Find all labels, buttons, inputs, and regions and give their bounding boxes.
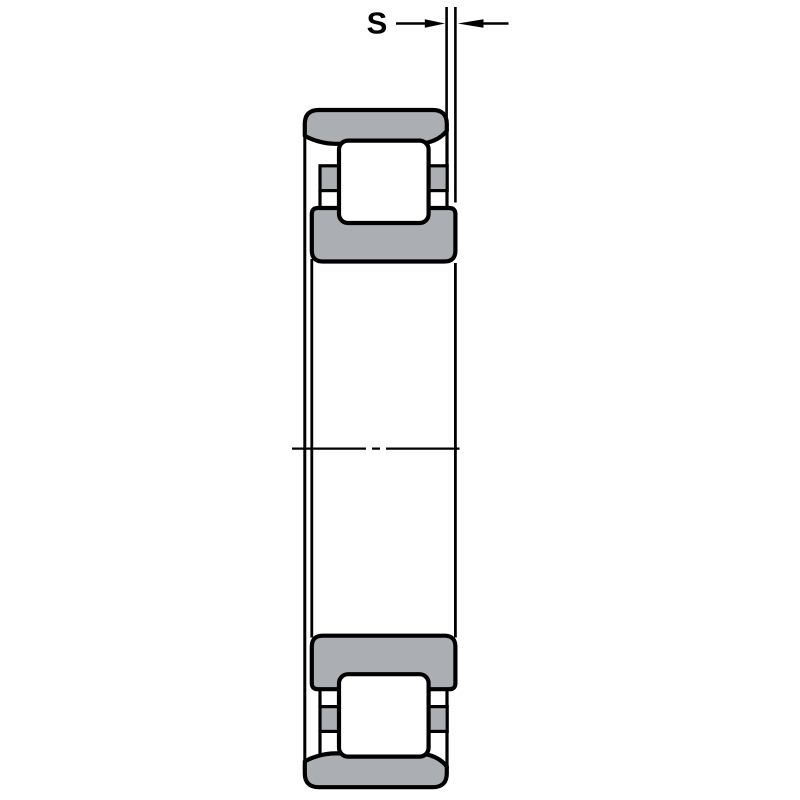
cage-bar-section-top-left bbox=[320, 166, 339, 191]
cylindrical-roller-bottom bbox=[339, 674, 429, 756]
bearing-section-figure: S bbox=[0, 0, 800, 800]
arrowhead-right-pointing-icon bbox=[425, 19, 445, 27]
dimension-s-label: S bbox=[367, 6, 388, 41]
cage-bar-section-bottom-right bbox=[429, 707, 448, 732]
cage-bar-section-bottom-left bbox=[320, 707, 339, 732]
cylindrical-roller-top bbox=[339, 141, 429, 223]
arrowhead-left-pointing-icon bbox=[458, 19, 484, 27]
cage-bar-section-top-right bbox=[429, 166, 448, 191]
drawing-canvas: S bbox=[0, 0, 800, 800]
